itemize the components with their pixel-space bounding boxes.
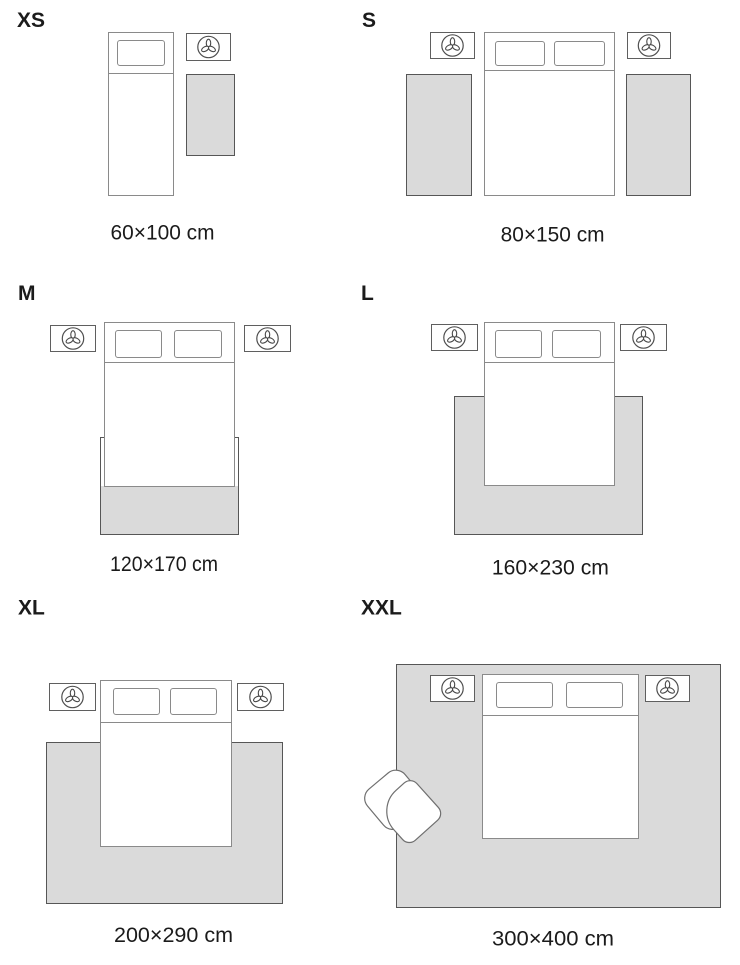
svg-text:XS: XS xyxy=(17,9,45,32)
svg-text:200×290 cm: 200×290 cm xyxy=(114,924,233,947)
svg-text:XL: XL xyxy=(18,597,45,620)
svg-text:120×170 cm: 120×170 cm xyxy=(110,553,218,576)
svg-text:60×100 cm: 60×100 cm xyxy=(111,222,215,245)
svg-text:S: S xyxy=(362,9,376,32)
svg-text:80×150 cm: 80×150 cm xyxy=(501,224,605,247)
svg-text:300×400 cm: 300×400 cm xyxy=(492,928,614,951)
svg-text:M: M xyxy=(18,282,36,305)
svg-text:XXL: XXL xyxy=(361,597,402,620)
svg-text:L: L xyxy=(361,282,374,305)
svg-text:160×230 cm: 160×230 cm xyxy=(492,557,609,580)
